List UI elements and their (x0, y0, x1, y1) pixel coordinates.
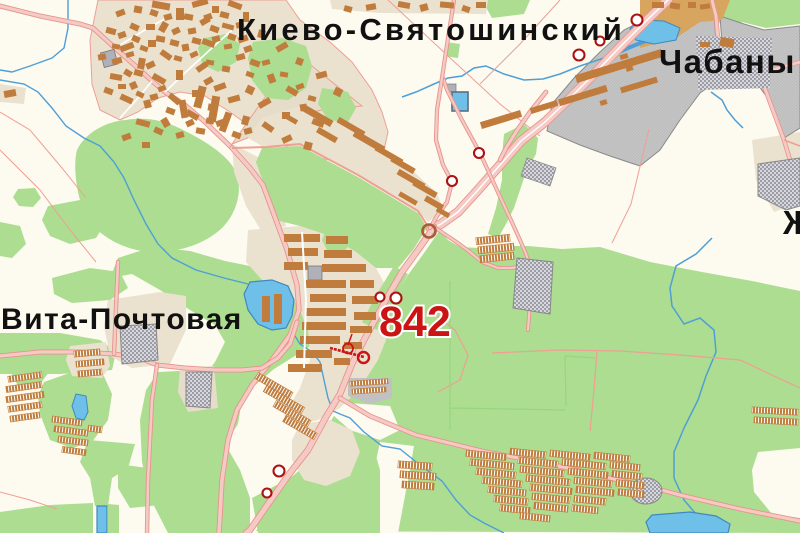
svg-text:842: 842 (379, 298, 451, 346)
svg-text:Киево-Святошинский: Киево-Святошинский (237, 12, 625, 47)
svg-text:Чабаны: Чабаны (659, 43, 796, 80)
svg-text:Ж: Ж (782, 204, 800, 241)
svg-text:Вита-Почтовая: Вита-Почтовая (1, 303, 243, 336)
